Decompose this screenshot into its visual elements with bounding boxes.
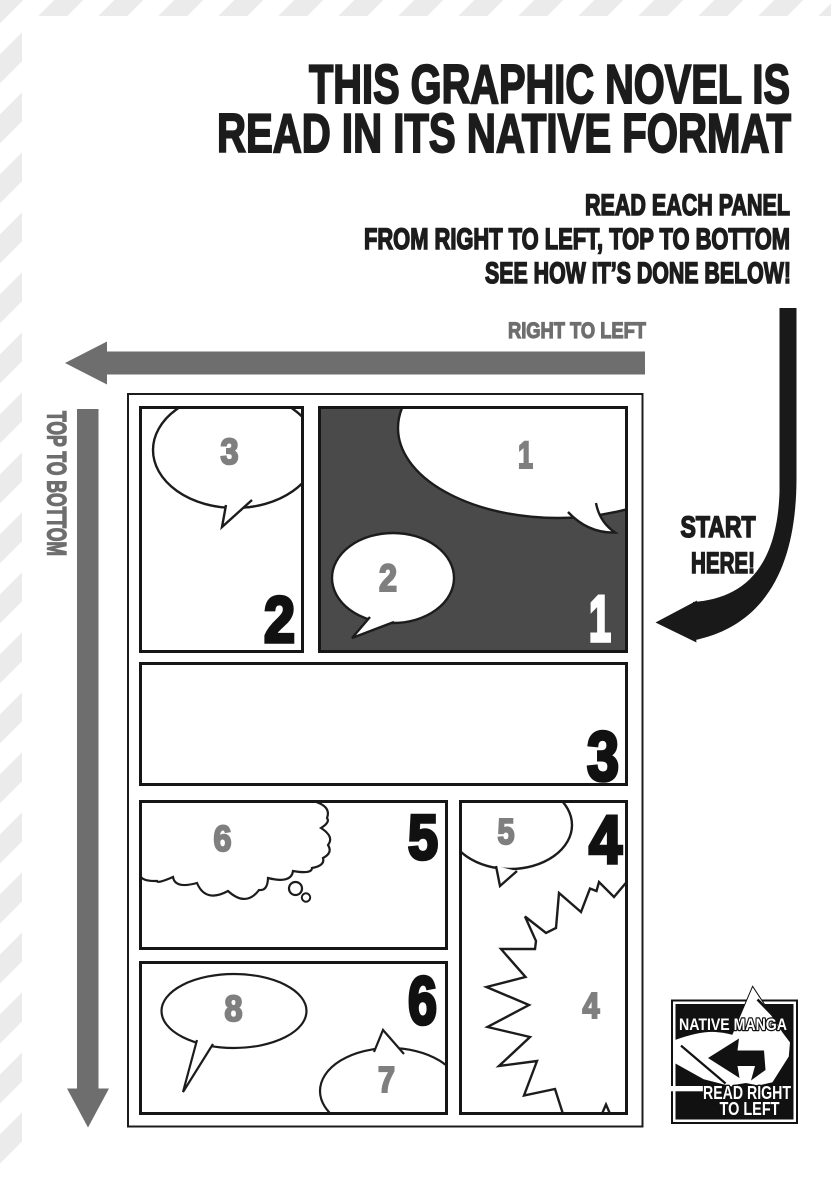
svg-text:2: 2 (379, 558, 397, 600)
svg-text:5: 5 (498, 811, 515, 852)
svg-text:4: 4 (589, 802, 622, 878)
svg-text:6: 6 (214, 818, 232, 859)
svg-text:3: 3 (221, 431, 239, 472)
svg-text:START: START (681, 511, 756, 544)
svg-text:NATIVE MANGA: NATIVE MANGA (679, 1016, 787, 1034)
svg-text:READ EACH PANEL: READ EACH PANEL (585, 189, 790, 222)
svg-text:3: 3 (587, 717, 619, 795)
svg-text:7: 7 (378, 1059, 395, 1100)
svg-text:READ IN ITS NATIVE FORMAT: READ IN ITS NATIVE FORMAT (217, 102, 791, 164)
svg-text:SEE HOW IT’S DONE BELOW!: SEE HOW IT’S DONE BELOW! (485, 257, 791, 290)
svg-text:1: 1 (589, 582, 611, 655)
svg-text:TO LEFT: TO LEFT (720, 1099, 780, 1119)
svg-text:TOP TO BOTTOM: TOP TO BOTTOM (42, 411, 72, 556)
svg-text:8: 8 (225, 988, 243, 1029)
svg-text:HERE!: HERE! (691, 547, 755, 580)
svg-text:1: 1 (518, 435, 533, 477)
svg-text:2: 2 (264, 583, 295, 656)
svg-text:6: 6 (408, 963, 437, 1039)
svg-text:FROM RIGHT TO LEFT, TOP TO BOT: FROM RIGHT TO LEFT, TOP TO BOTTOM (364, 223, 790, 256)
svg-text:RIGHT TO LEFT: RIGHT TO LEFT (508, 318, 646, 343)
svg-text:4: 4 (583, 985, 600, 1026)
svg-text:5: 5 (408, 803, 438, 873)
